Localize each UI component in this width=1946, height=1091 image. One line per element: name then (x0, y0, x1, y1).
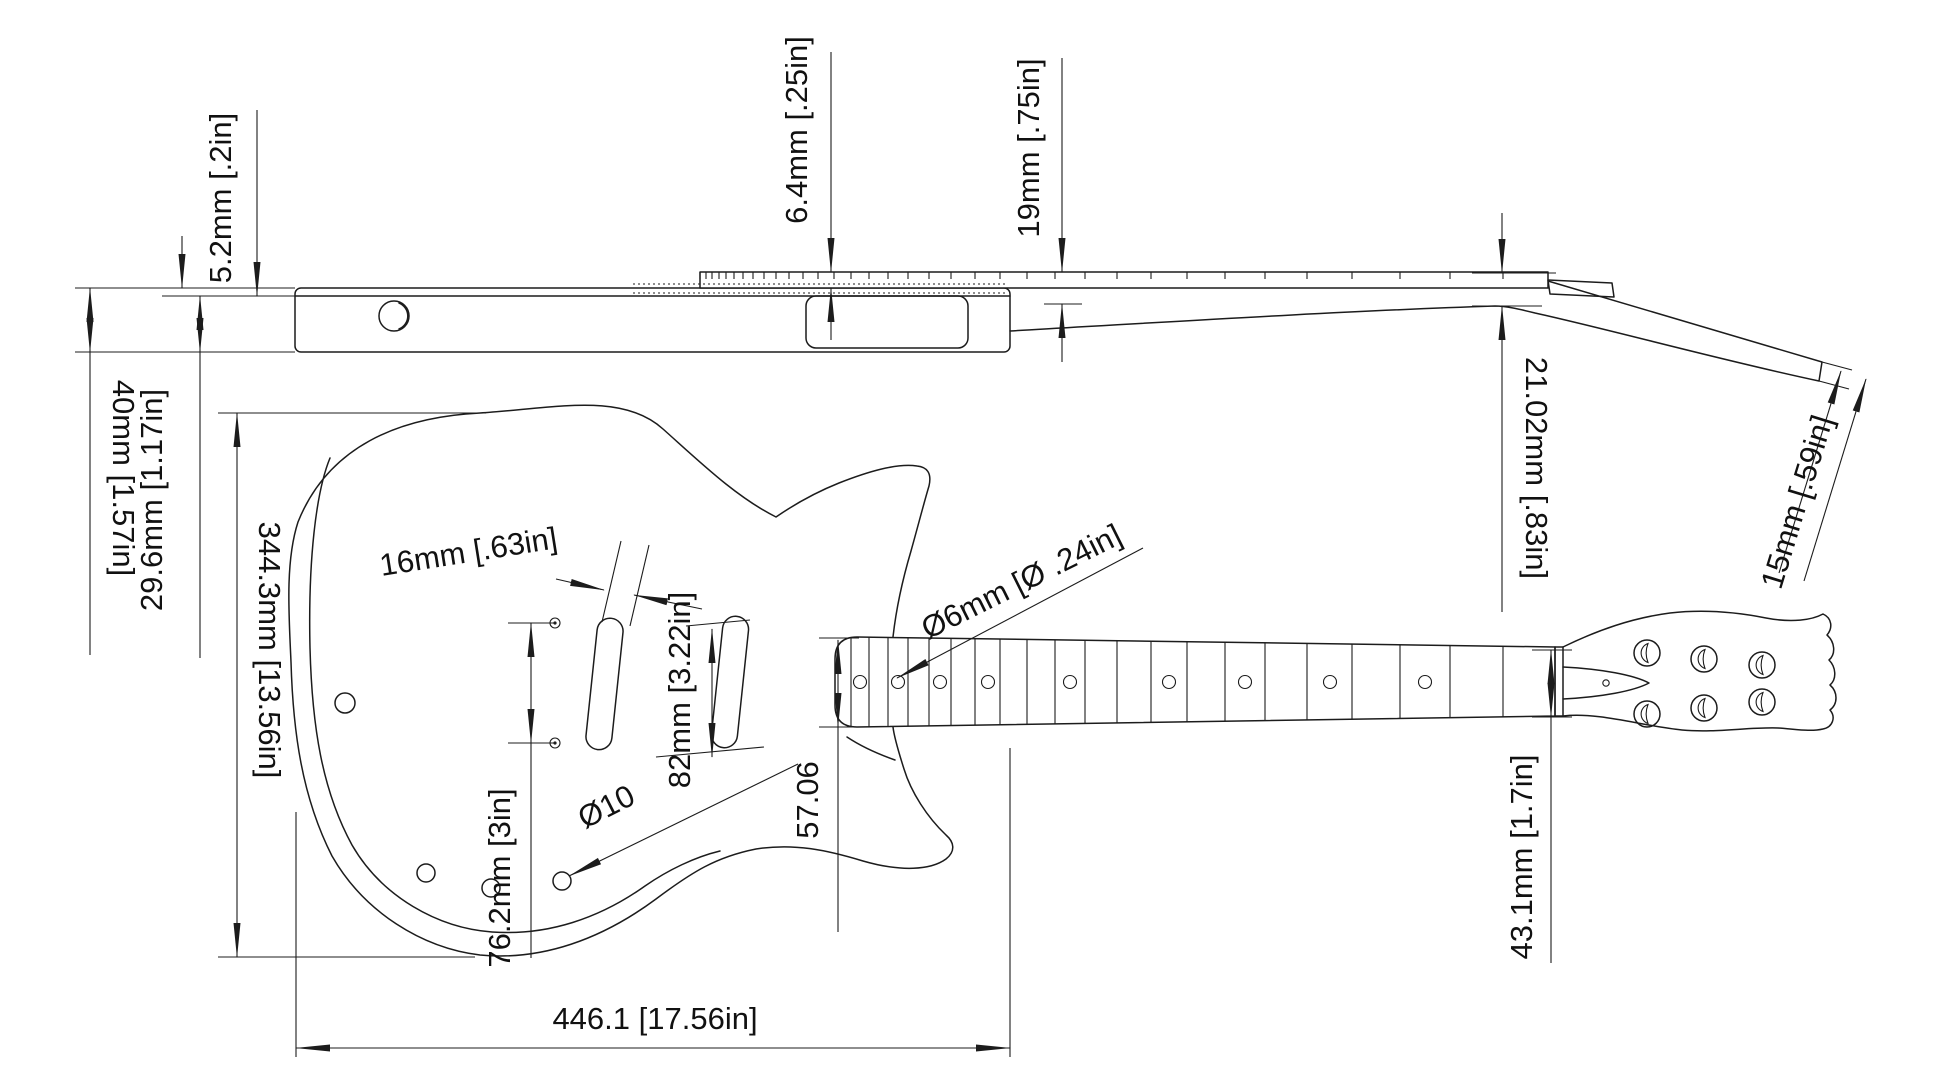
dim-pickupspacing-label: 82mm [3.22in] (662, 592, 697, 788)
fretboard-side (700, 272, 1548, 288)
dim-neck-label: 19mm [.75in] (1011, 58, 1046, 237)
dim-screwspacing-label: 76.2mm [3in] (482, 788, 517, 967)
dim-headthick-label: 15mm [.59in] (1754, 411, 1840, 593)
dim-inlay-label: Ø6mm [Ø .24in] (916, 517, 1127, 646)
ext-line (1819, 381, 1849, 389)
dim-bodylength-label: 446.1 [17.56in] (552, 1001, 757, 1036)
dim-laminate-label: 5.2mm [.2in] (203, 113, 238, 284)
dim-fretboard-label: 6.4mm [.25in] (779, 36, 814, 224)
guitar-plan-drawing: 5.2mm [.2in] 40mm [1.57in] 29.6mm [1.17i… (0, 0, 1946, 1091)
dim-nutwidth-label: 43.1mm [1.7in] (1504, 754, 1539, 959)
nut-block-side (1548, 280, 1614, 297)
ext-line (1822, 362, 1852, 370)
dim-bodywidth-label: 344.3mm [13.56in] (252, 522, 287, 779)
fretboard-front (835, 637, 1555, 727)
dim-heelheight-label: 21.02mm [.83in] (1519, 357, 1554, 579)
front-view (289, 405, 1836, 956)
body-slab-side (295, 288, 1010, 352)
side-view (295, 272, 1822, 381)
dim-heelwidth-label: 57.06 (790, 761, 825, 839)
technical-drawing-page: 5.2mm [.2in] 40mm [1.57in] 29.6mm [1.17i… (0, 0, 1946, 1091)
neck-back-and-headstock-side (1010, 281, 1822, 381)
dim-core-label: 29.6mm [1.17in] (134, 389, 169, 611)
